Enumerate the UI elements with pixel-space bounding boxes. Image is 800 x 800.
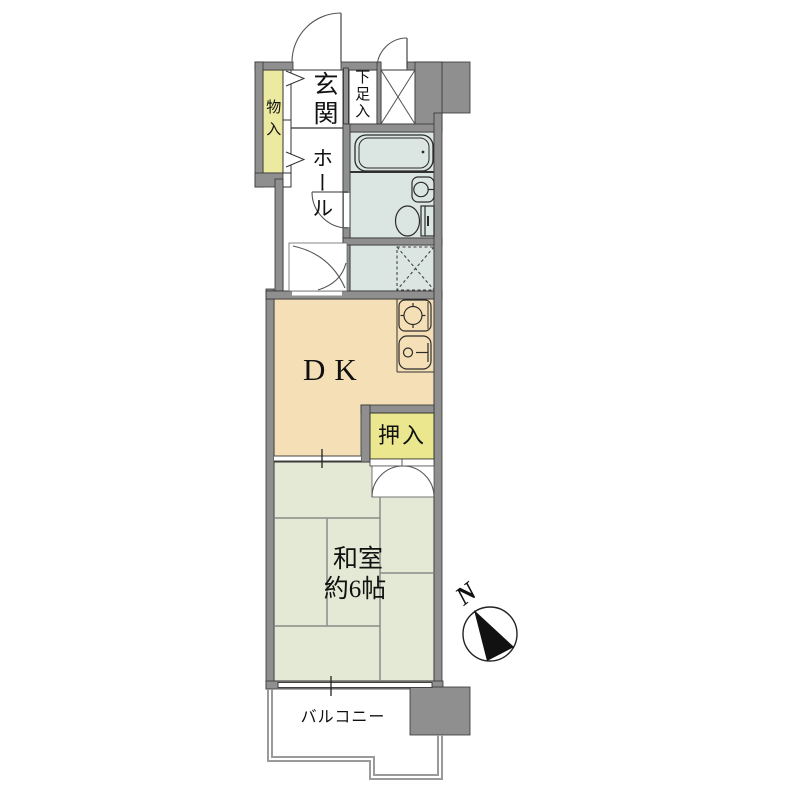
balcony-right-block [410,687,470,735]
laundry-floor [350,245,434,291]
floor-plan-canvas: 玄関 下足入 物入 ホール DK 押入 和室 約6帖 バルコニー N [0,0,800,800]
hall-dk-door [289,243,347,291]
room-label-storage: 物入 [264,99,280,143]
room-label-closet: 押入 [371,424,433,448]
room-label-japanese-room-size: 約6帖 [311,576,399,603]
room-label-balcony: バルコニー [293,709,393,726]
entrance-door-arc [292,13,341,62]
compass [463,607,517,661]
room-label-shoe-cupboard: 下足入 [353,69,369,120]
floor-plan-drawing [0,0,800,800]
balcony-window [278,683,432,688]
room-label-japanese-room: 和室 [327,546,389,573]
room-label-genkan: 玄関 [310,71,337,129]
room-label-dk: DK [303,353,366,386]
pipe-space-door-arc [377,38,407,68]
room-label-hall: ホール [310,147,333,222]
closet-door-swing-area [372,466,434,497]
